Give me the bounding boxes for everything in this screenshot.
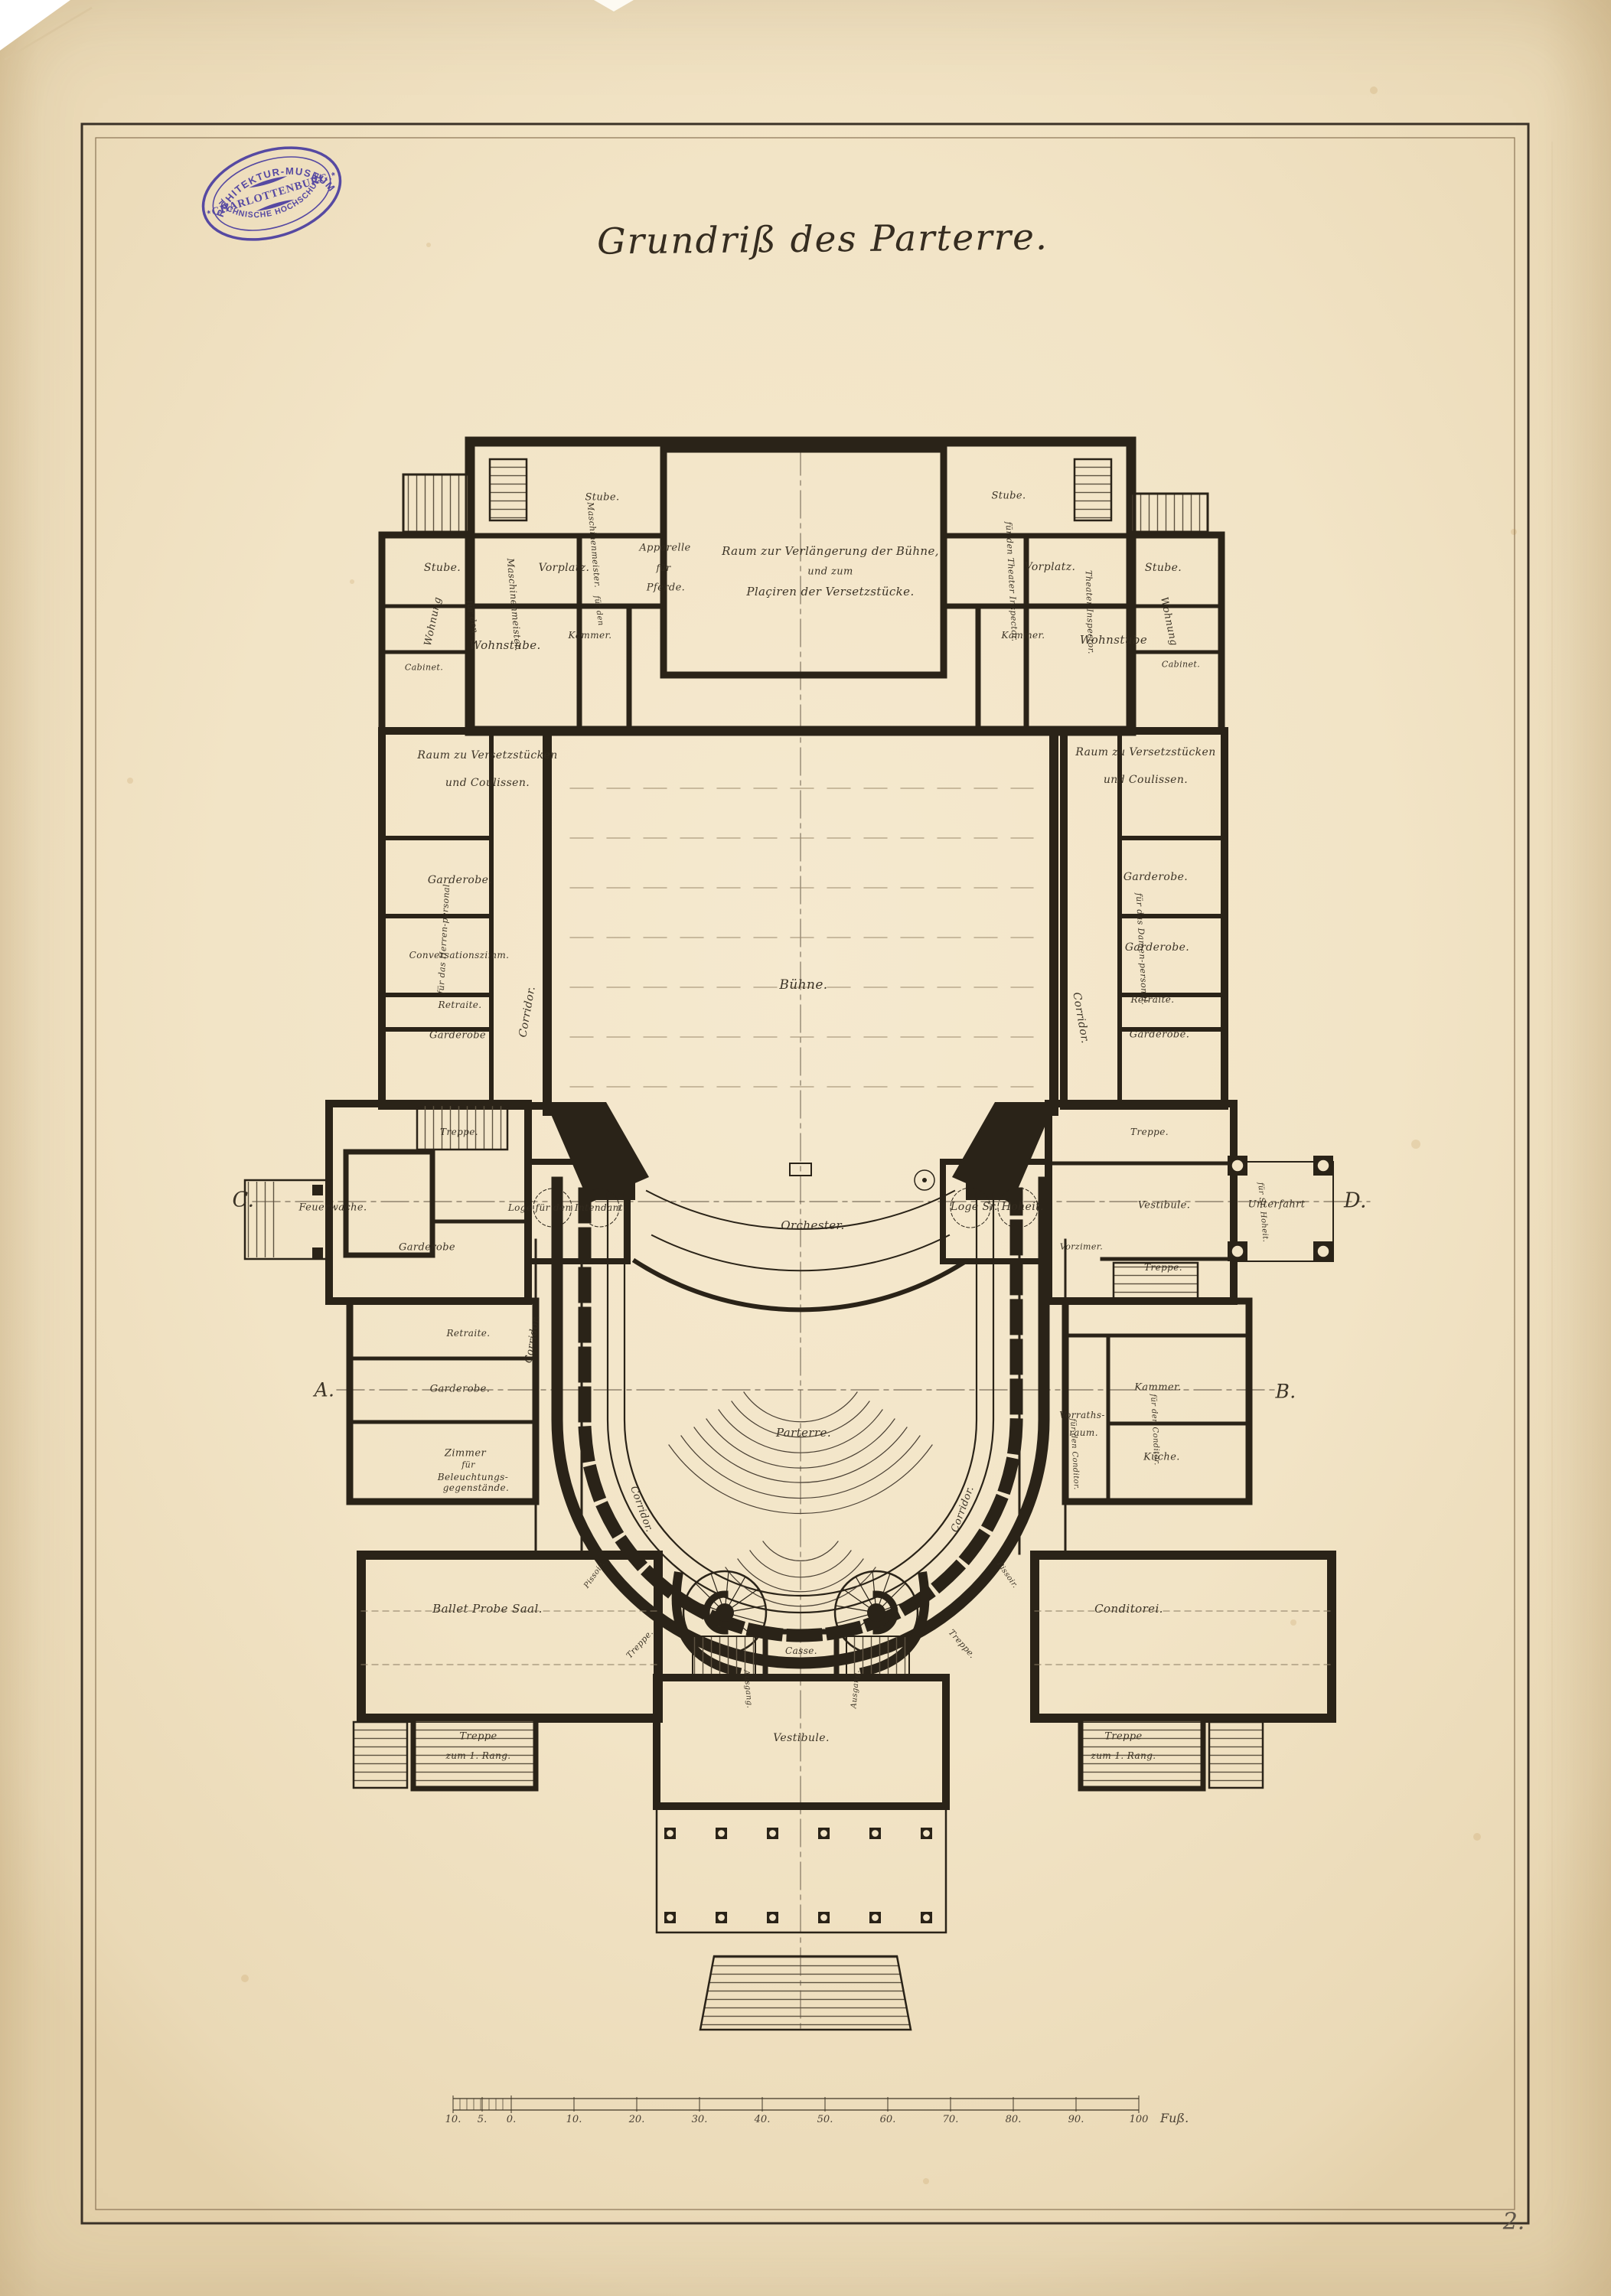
label-versatz-rechts-1: Raum zu Versetzstücken [1075,746,1215,758]
label-versatz-links-1: Raum zu Versetzstücken [417,749,557,762]
sheet-number: 2. [1503,2209,1525,2236]
scale-tick-100: 100 [1130,2114,1149,2125]
floor-plan-drawing [0,0,1611,2296]
label-versatz-links-2: und Coulissen. [445,777,530,789]
label-retraite-damen: Retraite. [1130,994,1174,1005]
label-conditorei: Conditorei. [1094,1602,1163,1616]
label-kammer-insp: Kammer. [1001,630,1045,641]
label-wohnstube-mm: Wohnstube. [469,638,540,652]
label-treppe-links: Treppe. [440,1127,478,1137]
label-cabinet-mm: Cabinet. [405,663,443,673]
label-treppe-rang-l2: zum 1. Rang. [446,1750,511,1761]
scale-unit-label: Fuß. [1160,2111,1189,2125]
label-point-a: A. [315,1379,335,1401]
label-garderobe-damen-1: Garderobe. [1123,871,1188,883]
label-orchester: Orchester. [781,1218,844,1232]
label-cabinet-insp: Cabinet. [1162,660,1200,670]
label-unterfahrt: Unterfahrt [1248,1199,1306,1211]
label-vorplatz-mm: Vorplatz. [539,562,590,574]
label-conversationszimmer: Conversationszimm. [409,950,510,960]
label-point-b: B. [1275,1381,1296,1403]
scale-tick-20: 20. [629,2114,645,2125]
label-zimmer-beleuchtung-4: gegenstände. [443,1482,510,1493]
scale-tick-5: 5. [478,2114,487,2125]
scale-tick-60: 60. [880,2114,896,2125]
scale-tick-80: 80. [1006,2114,1022,2125]
label-stube-mm-outer: Stube. [424,562,461,574]
label-vestibule-d: Vestibule. [1138,1200,1191,1212]
label-kammer-conditor: Kammer. [1134,1382,1182,1394]
scale-bar [453,2095,1139,2113]
label-treppe-d: Treppe. [1144,1262,1182,1273]
label-apparelle-1: Apparelle [639,543,690,554]
label-apparelle-2: für [656,563,670,573]
label-raum-verlaengerung-3: Plaçiren der Versetzstücke. [746,585,914,598]
scale-tick-10: 10. [566,2114,582,2125]
label-garderobe-herren-1: Garderobe. [428,874,492,886]
label-point-d: D. [1344,1189,1367,1213]
label-vorzimmer: Vorzimer. [1060,1242,1103,1252]
foxing-spots [127,86,1517,2184]
axis-lines [253,448,1370,2032]
corner-tear [0,0,70,51]
label-treppe-rang-r1: Treppe [1104,1731,1142,1743]
label-loge-intendant: Loge für den Intendant. [508,1202,626,1213]
stair-rear-right [1131,494,1208,532]
museum-stamp: ARCHITEKTUR-MUSEUM CHARLOTTENBURG. TECHN… [188,113,356,274]
label-treppe-rang-r2: zum 1. Rang. [1091,1750,1156,1761]
label-garderobe-damen-2: Garderobe. [1125,941,1189,954]
label-garderobe-damen-3: Garderobe. [1130,1029,1190,1041]
label-raum-verlaengerung-2: und zum [807,566,853,578]
label-loge-hoheit: Loge Sr. Hoheit. [951,1201,1044,1213]
stage-floor-lines [570,788,1033,1087]
label-stube-insp-outer: Stube. [1145,562,1182,574]
label-point-c: C. [232,1189,254,1212]
label-ballet-probe-saal: Ballet Probe Saal. [432,1602,543,1616]
stair-rear-left [403,475,470,532]
label-treppe-rang-l1: Treppe [459,1731,497,1743]
scale-tick-40: 40. [755,2114,771,2125]
label-kammer-mm: Kammer. [568,630,611,641]
scale-tick-70: 70. [943,2114,959,2125]
label-vorrathsraum-1: Vorraths- [1059,1410,1105,1420]
scale-tick-90: 90. [1068,2114,1084,2125]
label-buehne: Bühne. [779,977,827,993]
label-vorplatz-insp: Vorplatz. [1025,561,1076,573]
drawing-sheet: ARCHITEKTUR-MUSEUM CHARLOTTENBURG. TECHN… [0,0,1611,2296]
colonnade-columns [664,1828,932,1923]
label-zimmer-beleuchtung-1: Zimmer [445,1448,486,1459]
scale-tick-30: 30. [692,2114,708,2125]
label-treppe-rechts: Treppe. [1130,1127,1169,1137]
label-parterre: Parterre. [776,1426,831,1440]
sheet-title: Grundriß des Parterre. [597,216,1048,263]
plan-walls [245,442,1370,2032]
label-zimmer-beleuchtung-2: für [461,1460,475,1470]
label-vestibule-haupt: Vestibule. [773,1732,830,1744]
label-feuerwache: Feuerwache. [298,1202,367,1214]
label-stube-insp-inner: Stube. [991,491,1026,502]
label-garderobe-herren-2: Garderobe [429,1030,486,1042]
label-versatz-rechts-2: und Coulissen. [1104,774,1188,786]
entrance-steps [700,1956,911,2030]
label-casse: Casse. [785,1645,817,1656]
label-garderobe-links-3: Garderobe. [430,1384,491,1395]
label-apparelle-3: Pferde. [647,582,685,594]
top-edge-notch [594,0,634,11]
label-retraite-links-2: Retraite. [446,1328,490,1339]
scale-tick-0: 0. [507,2114,516,2125]
scale-tick-50: 50. [817,2114,833,2125]
colonnade-porch [657,1806,946,1932]
label-zimmer-beleuchtung-3: Beleuchtungs- [438,1472,508,1482]
label-garderobe-c: Garderobe [399,1242,455,1254]
label-retraite-herren: Retraite. [438,1000,481,1010]
label-kueche: Küche. [1143,1452,1180,1463]
label-raum-verlaengerung-1: Raum zur Verlängerung der Bühne, [722,544,939,558]
conditorei-room [1035,1555,1332,1718]
scale-tick-10: 10. [445,2114,461,2125]
